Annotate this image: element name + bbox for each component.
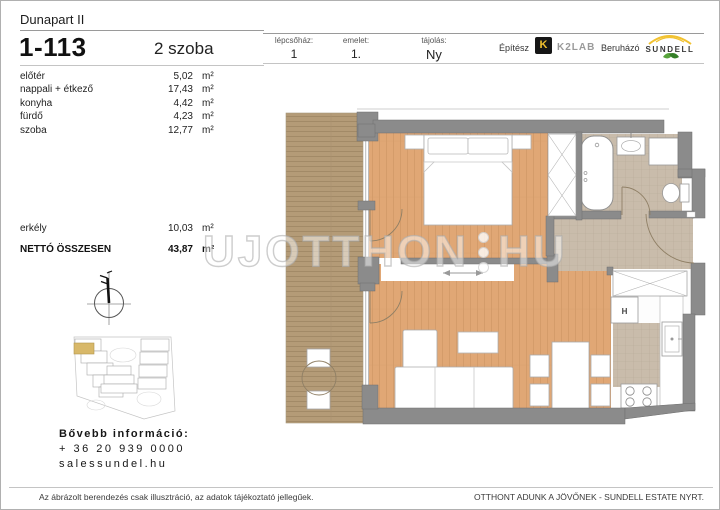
area-unit: m² xyxy=(193,110,228,123)
coffee-table xyxy=(458,332,498,353)
staircase-label: lépcsőház: xyxy=(273,36,315,45)
table-row: szoba 12,77 m² xyxy=(20,124,228,137)
floor-value: 1. xyxy=(335,47,377,61)
kitchen-tile-mat xyxy=(613,323,661,387)
bathtub xyxy=(581,136,613,210)
stove xyxy=(621,384,657,408)
area-unit: m² xyxy=(193,124,228,137)
kitchen-sink xyxy=(662,322,682,356)
toilet xyxy=(663,184,690,203)
bed xyxy=(405,135,531,225)
unit-number: 1-113 xyxy=(19,32,87,63)
entry-threshold xyxy=(687,212,695,217)
divider xyxy=(263,63,704,64)
architect-label: Építész xyxy=(499,43,529,53)
highlighted-unit xyxy=(74,343,94,354)
total-label: NETTÓ ÖSSZESEN xyxy=(20,243,145,256)
contact-website: salessundel.hu xyxy=(59,457,189,472)
total-row: NETTÓ ÖSSZESEN 43,87 m² xyxy=(20,243,228,256)
area-unit: m² xyxy=(193,97,228,110)
room-name: szoba xyxy=(20,124,145,137)
total-area: 43,87 xyxy=(145,243,193,256)
room-name: nappali + étkező xyxy=(20,83,145,96)
area-unit: m² xyxy=(193,83,228,96)
divider xyxy=(20,65,264,66)
room-name: konyha xyxy=(20,97,145,110)
nightstand xyxy=(405,135,424,149)
sundell-logo-icon: SUNDELL xyxy=(639,31,701,63)
project-title: Dunapart II xyxy=(20,12,84,27)
watermark: UJOTTHON HU xyxy=(203,227,568,277)
washing-machine xyxy=(649,138,678,165)
staircase-field: lépcsőház: 1 xyxy=(273,36,315,61)
site-plan xyxy=(67,331,179,423)
area-unit: m² xyxy=(193,70,228,83)
room-area: 12,77 xyxy=(145,124,193,137)
floor-label: emelet: xyxy=(335,36,377,45)
compass-icon xyxy=(79,269,141,329)
divider xyxy=(20,30,264,31)
area-table: előtér 5,02 m² nappali + étkező 17,43 m²… xyxy=(20,70,228,137)
room-count: 2 szoba xyxy=(154,39,214,59)
chair xyxy=(591,355,610,377)
balcony-row: erkély 10,03 m² xyxy=(20,222,228,235)
fridge-label: H xyxy=(622,307,628,316)
watermark-dots-icon xyxy=(478,232,489,273)
footer-divider xyxy=(9,487,713,488)
room-area: 4,42 xyxy=(145,97,193,110)
nightstand xyxy=(512,135,531,149)
orientation-value: Ny xyxy=(411,47,457,62)
floorplan-sheet: Dunapart II 1-113 2 szoba előtér 5,02 m²… xyxy=(0,0,720,510)
contact-title: Bővebb információ: xyxy=(59,427,189,442)
room-name: erkély xyxy=(20,222,145,235)
chair xyxy=(591,384,610,406)
fridge-cabinet: H xyxy=(611,297,638,323)
divider xyxy=(263,33,704,34)
table-row: fürdő 4,23 m² xyxy=(20,110,228,123)
floor-field: emelet: 1. xyxy=(335,36,377,61)
footer-disclaimer: Az ábrázolt berendezés csak illusztráció… xyxy=(39,492,314,502)
entry-floor xyxy=(552,214,693,271)
orientation-field: tájolás: Ny xyxy=(411,36,457,62)
contact-block: Bővebb információ: + 36 20 939 0000 sale… xyxy=(59,427,189,472)
table-row: nappali + étkező 17,43 m² xyxy=(20,83,228,96)
dining-table xyxy=(552,342,589,413)
table-row: előtér 5,02 m² xyxy=(20,70,228,83)
svg-text:SUNDELL: SUNDELL xyxy=(646,45,695,54)
room-area: 4,23 xyxy=(145,110,193,123)
staircase-value: 1 xyxy=(273,47,315,61)
room-area: 10,03 xyxy=(145,222,193,235)
watermark-text-left: UJOTTHON xyxy=(203,227,469,277)
balcony-chair xyxy=(307,349,330,367)
room-name: fürdő xyxy=(20,110,145,123)
shaft xyxy=(548,134,576,216)
developer-label: Beruházó xyxy=(601,43,640,53)
footer-slogan: OTTHONT ADUNK A JÖVŐNEK - SUNDELL ESTATE… xyxy=(474,492,704,502)
k2lab-logo-icon: K xyxy=(535,37,552,54)
watermark-text-right: HU xyxy=(498,227,568,277)
table-row: konyha 4,42 m² xyxy=(20,97,228,110)
room-area: 5,02 xyxy=(145,70,193,83)
entry-wardrobe xyxy=(613,271,687,296)
contact-phone: + 36 20 939 0000 xyxy=(59,442,189,457)
room-area: 17,43 xyxy=(145,83,193,96)
room-name: előtér xyxy=(20,70,145,83)
orientation-label: tájolás: xyxy=(411,36,457,45)
chair xyxy=(530,384,549,406)
chair xyxy=(530,355,549,377)
architect-brand: K2LAB xyxy=(557,42,595,53)
